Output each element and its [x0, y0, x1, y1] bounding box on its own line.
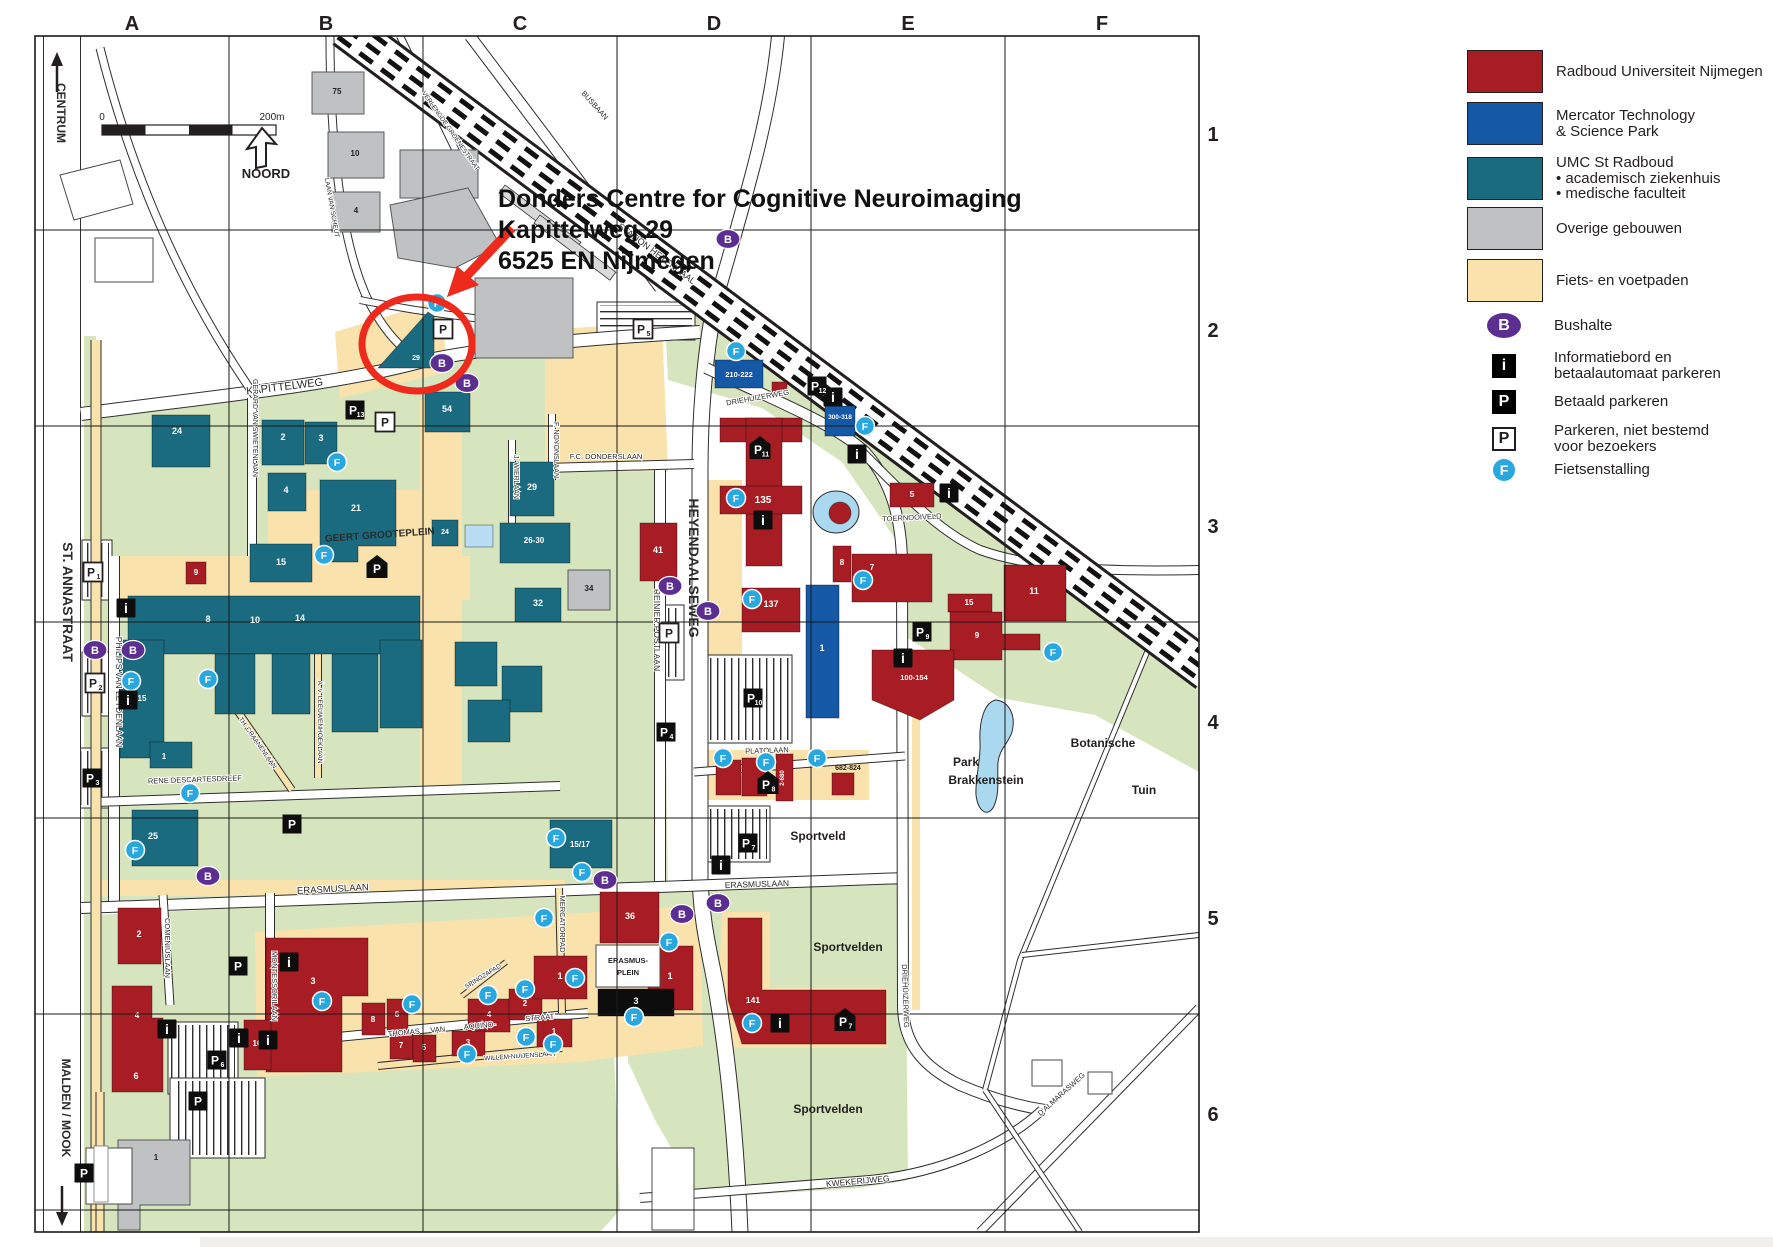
parking-garage-icon-number: 11 [762, 452, 770, 459]
building-number: 54 [442, 404, 452, 414]
building-number: 15 [276, 557, 286, 567]
paid-parking-icon-label: P [80, 1167, 88, 1181]
grid-row-label: 5 [1207, 908, 1218, 930]
bike-parking-icon-label: F [321, 550, 328, 562]
building-number: 2 [280, 432, 285, 442]
building-number: 24 [172, 426, 182, 436]
restricted-parking-icon-label: P [439, 323, 447, 337]
paid-parking-icon-number: 7 [752, 845, 756, 852]
street-label: MALDEN / MOOK [59, 1059, 73, 1158]
paid-parking-icon-label: P [86, 772, 94, 786]
building-number: 34 [585, 584, 594, 593]
restricted-parking-icon-number: 5 [647, 331, 651, 338]
info-icon-label: i [287, 954, 291, 970]
road [545, 464, 694, 468]
restricted-parking-icon-number: 1 [97, 574, 101, 581]
street-label: 6 [133, 1071, 138, 1081]
info-icon-label: i [237, 1030, 241, 1046]
info-icon-label: i [778, 1015, 782, 1031]
bike-parking-icon-label: F [205, 674, 212, 686]
building-number: 41 [653, 545, 663, 555]
info-icon-label: i [761, 512, 765, 528]
paid-parking-icon-label: P [288, 818, 296, 832]
grid-row-label: 3 [1207, 516, 1218, 538]
building-number: 8 [840, 558, 845, 567]
building-number: 7 [399, 1041, 404, 1050]
grid-column-label: B [319, 13, 333, 35]
bus-stop-icon-label: B [714, 898, 722, 910]
building-number: 1 [162, 752, 167, 761]
building [455, 642, 497, 686]
street-label: MERCATORPAD [558, 895, 567, 953]
paid-parking-icon-number: 10 [755, 700, 763, 707]
grid-row-label: 2 [1207, 320, 1218, 342]
street-label: 14 [295, 613, 305, 623]
paid-parking-icon-number: 4 [670, 734, 674, 741]
bike-parking-icon-label: F [485, 990, 492, 1002]
bike-parking-icon-label: F [523, 1032, 530, 1044]
building-number: 7 [870, 563, 875, 572]
bike-parking-icon-label: F [733, 493, 740, 505]
building [128, 596, 420, 654]
street-label: 10 [250, 615, 260, 625]
bike-parking-icon-label: F [749, 1018, 756, 1030]
paid-parking-icon-label: P [660, 726, 668, 740]
parking-garage-icon-label: P [839, 1015, 847, 1029]
paid-parking-icon-label: P [916, 626, 924, 640]
building-number: 1 [819, 643, 824, 653]
bus-stop-icon-label: B [678, 909, 686, 921]
bike-parking-icon-label: F [720, 753, 727, 765]
building-number: 15 [965, 598, 974, 607]
bike-parking-icon-label: F [733, 346, 740, 358]
bike-parking-icon-label: F [550, 1039, 557, 1051]
building-number: 4 [135, 1011, 140, 1020]
street-label-box [94, 1146, 108, 1202]
parking-garage-icon-number: 8 [772, 787, 776, 794]
building [468, 700, 510, 742]
building [332, 654, 378, 732]
bike-parking-icon-label: F [132, 845, 139, 857]
building-number: 1 [667, 971, 672, 981]
bus-stop-icon-label: B [91, 645, 99, 657]
building-number: 1 [154, 1153, 159, 1162]
parking-garage-icon-label: P [754, 443, 762, 457]
building-number: 100-154 [900, 673, 928, 682]
street-label: Sportvelden [793, 1102, 862, 1116]
building [475, 278, 573, 358]
info-icon-label: i [266, 1032, 270, 1048]
parking-garage-icon-label: P [373, 562, 381, 576]
building-number: 21 [351, 503, 361, 513]
street-label: 8 [205, 614, 210, 624]
paid-parking-icon-label: P [742, 837, 750, 851]
grid-row-label: 4 [1207, 712, 1219, 734]
paid-parking-icon-number: 13 [357, 412, 365, 419]
grid-column-label: F [1096, 13, 1108, 35]
building-number: 10 [351, 149, 360, 158]
street-label: F.C. DONDERSLAAN [570, 452, 643, 461]
building [262, 420, 304, 465]
bus-stop-icon-label: B [438, 358, 446, 370]
building-number: 5 [910, 489, 915, 499]
annotation-line-1: Donders Centre for Cognitive Neuroimagin… [498, 184, 1022, 215]
building-number: 4 [354, 206, 359, 215]
street-label: 135 [755, 495, 772, 506]
street-label: MONTESSORILAAN [270, 951, 279, 1021]
building [829, 502, 851, 524]
bus-stop-icon-label: B [666, 581, 674, 593]
grid-column-label: A [125, 13, 139, 35]
bike-parking-icon-label: F [862, 421, 869, 433]
building-number: 3 [633, 996, 638, 1006]
bike-parking-icon-label: F [541, 913, 548, 925]
grid-column-label: D [707, 13, 721, 35]
building [832, 773, 854, 795]
street-label: ST. ANNASTRAAT [60, 542, 76, 662]
building [652, 1148, 694, 1230]
grid-row-label: 6 [1207, 1104, 1218, 1126]
info-icon-label: i [855, 446, 859, 462]
building-number: 75 [333, 87, 342, 96]
terrain-area [420, 400, 462, 790]
building-number: 137 [763, 599, 778, 609]
restricted-parking-icon-label: P [89, 677, 97, 691]
terrain-area [912, 700, 920, 1010]
info-icon-label: i [124, 600, 128, 616]
building-number: 210-222 [725, 370, 753, 379]
parking-garage-icon-number: 7 [849, 1024, 853, 1031]
bus-stop-icon-label: B [601, 875, 609, 887]
info-icon-label: i [165, 1021, 169, 1037]
bus-stop-icon-label: B [704, 606, 712, 618]
building [272, 654, 310, 714]
bike-parking-icon-label: F [522, 984, 529, 996]
bus-stop-icon-label: B [463, 378, 471, 390]
building [152, 415, 210, 467]
building-number: 300-318 [828, 414, 852, 421]
bike-parking-icon-label: F [553, 833, 560, 845]
building-number: 9 [194, 568, 199, 577]
restricted-parking-icon-label: P [637, 323, 645, 337]
building-number: 25 [148, 831, 158, 841]
grid-column-label: C [513, 13, 527, 35]
paid-parking-icon-number: 6 [221, 1062, 225, 1069]
building-number: 29 [412, 355, 420, 362]
street-label: A. V. LEEUWENHOEKLAAN [316, 681, 323, 764]
bike-parking-icon-label: F [814, 753, 821, 765]
building-number: 15/17 [570, 840, 591, 849]
building [95, 238, 153, 282]
restricted-parking-icon-number: 2 [99, 685, 103, 692]
paid-parking-icon-number: 9 [926, 634, 930, 641]
building-number: 3 [318, 433, 323, 443]
bike-parking-icon-label: F [334, 457, 341, 469]
building-number: 1 [557, 971, 562, 981]
street-label: Brakkenstein [948, 773, 1023, 787]
building [150, 742, 192, 768]
building-number: 8 [371, 1015, 376, 1024]
page-edge [200, 1237, 1773, 1247]
grid-row-label: 1 [1207, 124, 1218, 146]
restricted-parking-icon-label: P [381, 416, 389, 430]
bike-parking-icon-label: F [319, 996, 326, 1008]
info-icon-label: i [126, 692, 130, 708]
parking-garage-icon-label: P [762, 778, 770, 792]
street-label: Sportvelden [813, 940, 882, 954]
bike-parking-icon-label: F [128, 676, 135, 688]
building-number: 26-30 [524, 536, 545, 545]
building [380, 640, 422, 728]
building-number: 2 [136, 929, 141, 939]
bus-stop-icon-label: B [129, 645, 137, 657]
building-number: 141 [746, 995, 760, 1005]
restricted-parking-icon-label: P [87, 566, 95, 580]
map-page: 242342115542926-302432291512515/17210-22… [0, 0, 1773, 1247]
street-label: Sportveld [790, 829, 845, 843]
bike-parking-icon-label: F [666, 937, 673, 949]
building [1088, 1072, 1112, 1094]
info-icon-label: i [947, 485, 951, 501]
annotation-callout: Donders Centre for Cognitive Neuroimagin… [498, 184, 1022, 277]
bus-stop-icon-label: B [204, 871, 212, 883]
paid-parking-icon-number: 12 [819, 388, 827, 395]
scale-bar-segment [102, 125, 146, 135]
annotation-line-3: 6525 EN Nijmegen [498, 246, 1022, 277]
bike-parking-icon-label: F [579, 867, 586, 879]
street-label: PLEIN [617, 968, 639, 977]
street-label: NOORD [242, 166, 290, 181]
bike-parking-icon-label: F [1050, 647, 1057, 659]
street-label: J. WIERLAAN [512, 455, 519, 499]
building [596, 945, 660, 987]
street-label: VAN [430, 1024, 446, 1034]
bike-parking-icon-label: F [572, 973, 579, 985]
bike-parking-icon-label: F [187, 788, 194, 800]
building-number: 2 [523, 999, 528, 1008]
bike-parking-icon-label: F [464, 1049, 471, 1061]
street-label: 0 [99, 112, 105, 123]
street-label: 682-824 [835, 765, 861, 772]
scale-bar-segment [189, 125, 233, 135]
restricted-parking-icon-label: P [665, 627, 673, 641]
street-label: GERARD VAN SWIETENLAAN [251, 379, 258, 477]
street-label: 200m [259, 112, 284, 123]
paid-parking-icon-label: P [234, 960, 242, 974]
building [215, 654, 255, 714]
building [825, 406, 855, 436]
building-number: 29 [527, 482, 537, 492]
building [1032, 1060, 1062, 1086]
paid-parking-icon-number: 3 [96, 780, 100, 787]
building-number: 15 [138, 694, 147, 703]
info-icon-label: i [831, 389, 835, 405]
grid-column-label: E [901, 13, 914, 35]
annotation-line-2: Kapittelweg 29 [498, 215, 1022, 246]
building-number: 11 [1029, 586, 1039, 596]
building-number: 2-680 [780, 770, 786, 786]
street-label: COMENIUSLAAN [163, 918, 172, 978]
building-number: 3 [310, 976, 315, 986]
building-number: 24 [441, 529, 449, 536]
street-label: F. NOYONSLAAN [552, 422, 559, 478]
building-number: 36 [625, 911, 635, 921]
paid-parking-icon-label: P [211, 1054, 219, 1068]
street-label: Park [953, 755, 979, 769]
building-number: 32 [533, 598, 543, 608]
building [465, 525, 493, 547]
bike-parking-icon-label: F [763, 757, 770, 769]
building-number: 9 [975, 631, 980, 640]
street-label: Tuin [1132, 783, 1156, 797]
street-label: Botanische [1071, 736, 1136, 750]
info-icon-label: i [901, 650, 905, 666]
bike-parking-icon-label: F [409, 999, 416, 1011]
street-label: ERASMUS- [608, 956, 649, 965]
building-number: 4 [283, 485, 288, 495]
paid-parking-icon-label: P [194, 1095, 202, 1109]
info-icon-label: i [719, 857, 723, 873]
bike-parking-icon-label: F [631, 1012, 638, 1024]
bike-parking-icon-label: F [860, 575, 867, 587]
bike-parking-icon-label: F [749, 594, 756, 606]
